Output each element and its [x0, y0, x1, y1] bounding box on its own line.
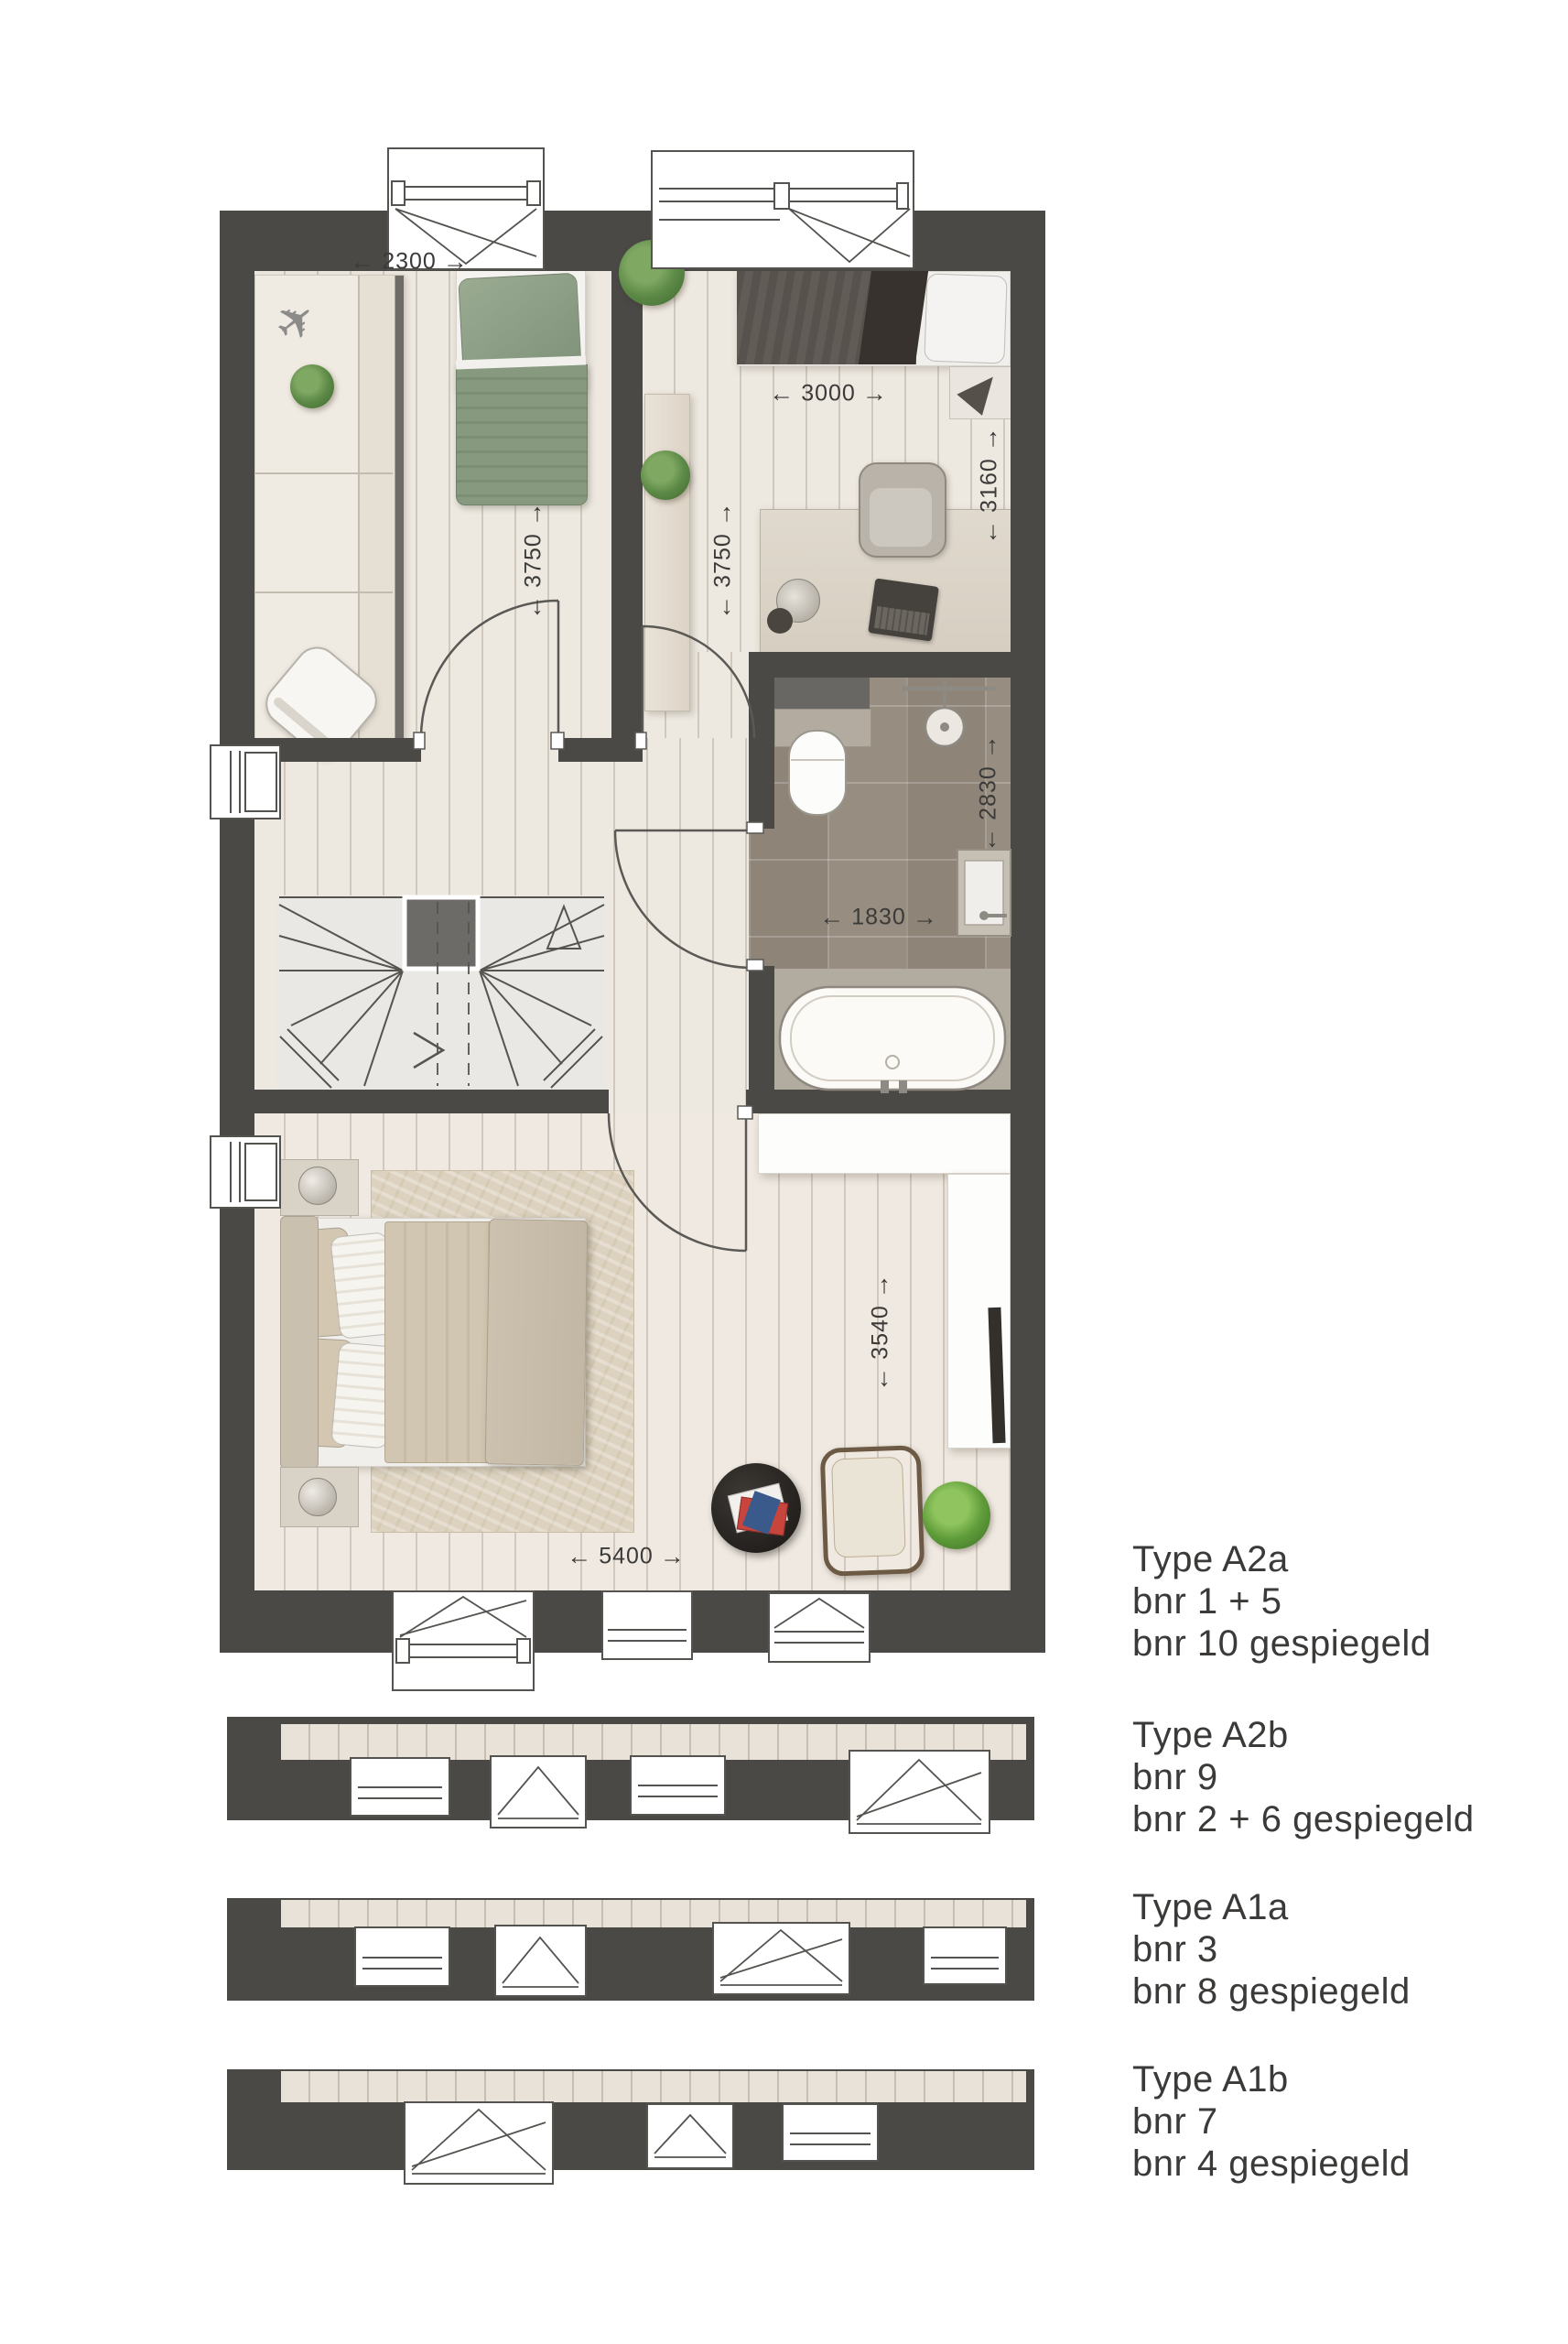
dim-bedroom-right-depth: ← 3750 → [710, 501, 737, 620]
arrow-left-icon: ← [978, 519, 1002, 545]
window-left-upper [211, 745, 280, 819]
arrow-left-icon: ← [869, 1366, 893, 1392]
legend-line: bnr 8 gespiegeld [1132, 1970, 1411, 2013]
floorplan-sheet: ✈ [0, 0, 1568, 2344]
strip-windows [351, 1751, 1006, 2184]
stair-direction-arrow-icon [414, 1033, 443, 1068]
sink-icon [957, 850, 1011, 936]
dim-value: 3160 [977, 458, 1003, 513]
legend-line: bnr 2 + 6 gespiegeld [1132, 1798, 1475, 1840]
legend-line: bnr 4 gespiegeld [1132, 2143, 1411, 2185]
legend-type-a1a: Type A1a bnr 3 bnr 8 gespiegeld [1132, 1886, 1411, 2013]
stair-up-triangle-icon [547, 906, 580, 949]
tv-icon [988, 1308, 1005, 1443]
arrow-right-icon: → [913, 906, 938, 930]
dim-master-width: ← 5400 → [567, 1544, 686, 1570]
legend-title: Type A1a [1132, 1886, 1411, 1928]
arrow-left-icon: ← [711, 594, 736, 620]
arrow-left-icon: ← [819, 906, 845, 930]
door-master-bedroom [609, 1113, 746, 1251]
dim-bathroom-depth: ← 2830 → [976, 733, 1002, 852]
dim-value: 2830 [976, 765, 1002, 820]
window-bottom-large [393, 1591, 534, 1690]
arrow-left-icon: ← [567, 1545, 592, 1569]
legend-type-a2b: Type A2b bnr 9 bnr 2 + 6 gespiegeld [1132, 1714, 1475, 1840]
arrow-right-icon: → [978, 426, 1002, 451]
legend-line: bnr 1 + 5 [1132, 1580, 1432, 1622]
door-bathroom [615, 830, 752, 968]
stair-void [405, 897, 478, 969]
legend-line: bnr 10 gespiegeld [1132, 1622, 1432, 1665]
dim-bedroom-left-width: ← 2300 → [350, 249, 469, 276]
strip-a2b-windows [351, 1751, 989, 1833]
arrow-right-icon: → [711, 501, 736, 526]
arrow-right-icon: → [869, 1273, 893, 1298]
dim-value: 3540 [868, 1305, 894, 1360]
legend-line: bnr 7 [1132, 2100, 1411, 2143]
arrow-left-icon: ← [350, 250, 375, 275]
dim-bedroom-right-width: ← 3000 → [769, 381, 888, 407]
dim-bathroom-width: ← 1830 → [819, 905, 938, 931]
legend-type-a2a: Type A2a bnr 1 + 5 bnr 10 gespiegeld [1132, 1538, 1432, 1665]
dim-bedroom-right-length: ← 3160 → [977, 426, 1003, 545]
dim-value: 1830 [851, 905, 906, 931]
legend-title: Type A1b [1132, 2058, 1411, 2100]
dim-master-sitting-depth: ← 3540 → [868, 1273, 894, 1392]
dim-value: 3750 [710, 533, 737, 588]
strip-a1b-windows [405, 2102, 878, 2184]
window-top-right [652, 151, 914, 268]
strip-a1a-windows [355, 1923, 1006, 1996]
staircase [279, 897, 604, 1088]
legend-line: bnr 9 [1132, 1756, 1475, 1798]
arrow-left-icon: ← [522, 594, 546, 620]
legend-title: Type A2a [1132, 1538, 1432, 1580]
toilet-icon [789, 731, 846, 815]
window-bottom-small [602, 1591, 692, 1659]
dim-value: 3750 [521, 533, 547, 588]
arrow-right-icon: → [977, 733, 1001, 759]
arrow-right-icon: → [522, 501, 546, 526]
dim-value: 2300 [382, 249, 437, 276]
legend-type-a1b: Type A1b bnr 7 bnr 4 gespiegeld [1132, 2058, 1411, 2185]
window-bottom-right [769, 1593, 870, 1662]
door-bedroom-left [421, 601, 558, 738]
legend-line: bnr 3 [1132, 1928, 1411, 1970]
legend-title: Type A2b [1132, 1714, 1475, 1756]
arrow-left-icon: ← [977, 827, 1001, 852]
dim-bedroom-left-depth: ← 3750 → [521, 501, 547, 620]
door-bedroom-right [643, 626, 754, 738]
arrow-right-icon: → [443, 250, 469, 275]
bathtub [780, 987, 1005, 1093]
dim-value: 5400 [599, 1544, 654, 1570]
window-left-lower [211, 1136, 280, 1208]
arrow-right-icon: → [862, 382, 888, 407]
dim-value: 3000 [801, 381, 856, 407]
arrow-left-icon: ← [769, 382, 795, 407]
arrow-right-icon: → [660, 1545, 686, 1569]
